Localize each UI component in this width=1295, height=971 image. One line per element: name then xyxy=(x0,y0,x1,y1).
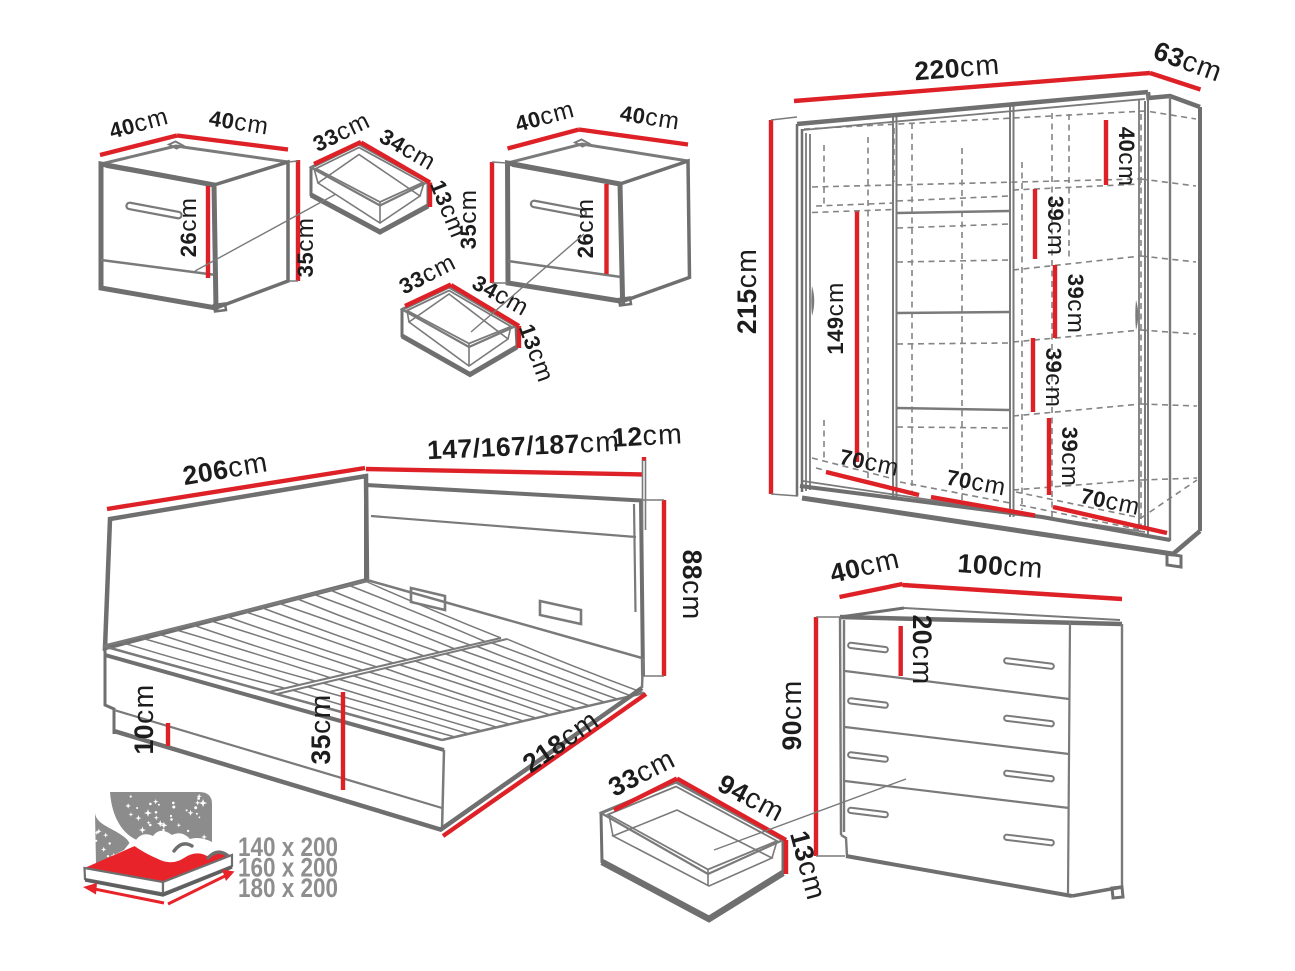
svg-text:12cm: 12cm xyxy=(611,418,683,454)
svg-text:26cm: 26cm xyxy=(572,198,599,259)
svg-text:90cm: 90cm xyxy=(776,680,808,751)
svg-text:39cm: 39cm xyxy=(1062,274,1089,335)
svg-text:35cm: 35cm xyxy=(305,694,337,765)
svg-text:39cm: 39cm xyxy=(1040,348,1067,409)
svg-text:39cm: 39cm xyxy=(1042,196,1069,257)
svg-text:88cm: 88cm xyxy=(676,550,708,621)
svg-text:40cm: 40cm xyxy=(1113,127,1140,188)
svg-text:20cm: 20cm xyxy=(906,615,938,686)
svg-text:26cm: 26cm xyxy=(175,197,202,258)
svg-text:215cm: 215cm xyxy=(731,248,763,334)
svg-text:35cm: 35cm xyxy=(292,217,319,278)
svg-text:180 x 200: 180 x 200 xyxy=(238,873,338,903)
svg-text:149cm: 149cm xyxy=(822,281,849,354)
svg-text:39cm: 39cm xyxy=(1056,427,1083,488)
svg-text:10cm: 10cm xyxy=(128,684,160,755)
svg-text:35cm: 35cm xyxy=(455,189,482,250)
svg-text:220cm: 220cm xyxy=(913,49,1001,88)
